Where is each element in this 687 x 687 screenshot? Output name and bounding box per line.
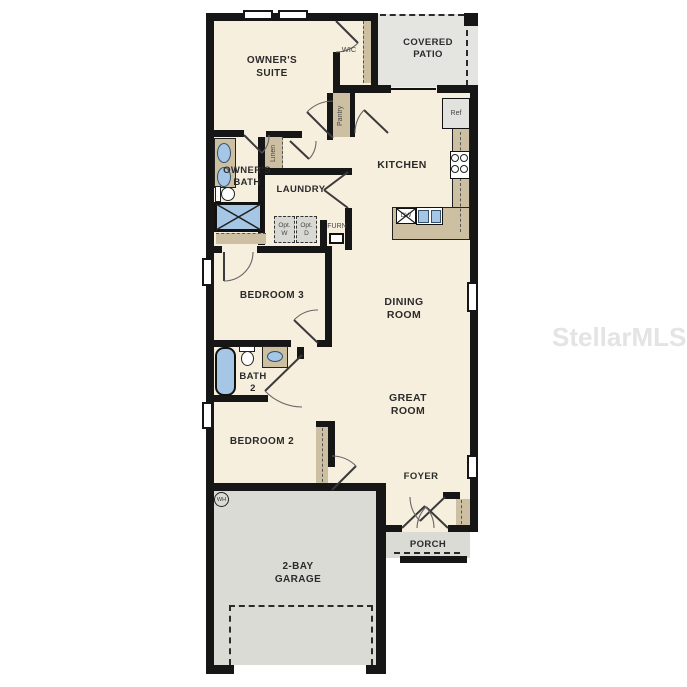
garage-label: 2-BAY GARAGE <box>266 561 330 586</box>
wall <box>350 93 355 137</box>
sink-basin <box>418 210 429 223</box>
window <box>278 10 308 20</box>
optional-dryer-label: Opt. D <box>299 222 315 236</box>
wall <box>317 340 332 347</box>
patio-dashed-edge-top <box>380 14 464 16</box>
toilet-bowl <box>241 351 254 366</box>
bath2-label: BATH 2 <box>238 371 268 395</box>
wall <box>206 395 268 402</box>
floor-plan: Ref DW Opt. W Opt. D WH <box>0 0 687 687</box>
vanity-sink <box>217 143 231 163</box>
window <box>243 10 273 20</box>
window <box>467 282 478 312</box>
window <box>467 455 478 479</box>
porch-step-wall <box>400 556 467 563</box>
furnace-label: FURN <box>327 223 346 231</box>
coat-closet <box>456 499 470 525</box>
wall <box>437 85 478 93</box>
wall <box>443 492 460 499</box>
wall <box>206 246 222 253</box>
refrigerator: Ref <box>442 98 470 129</box>
refrigerator-label: Ref <box>451 110 462 118</box>
wall <box>333 85 378 93</box>
laundry-label: LAUNDRY <box>266 184 336 196</box>
wall <box>366 665 386 674</box>
pantry-label: Pantry <box>337 99 344 133</box>
linen-label: Linen <box>270 140 277 166</box>
window <box>202 258 213 286</box>
optional-dryer: Opt. D <box>296 216 317 243</box>
patio-dashed-edge-right <box>466 20 468 86</box>
foyer-label: FOYER <box>391 471 451 483</box>
sink-basin <box>431 210 442 223</box>
wall <box>206 665 234 674</box>
counter-dashed-line <box>460 132 461 232</box>
garage-door-dashed-outline <box>229 605 373 665</box>
bedroom3-label: BEDROOM 3 <box>227 290 317 303</box>
wall <box>371 13 378 93</box>
kitchen-label: KITCHEN <box>367 159 437 172</box>
porch-label: PORCH <box>398 539 458 551</box>
owners-suite-label: OWNER'S SUITE <box>237 55 307 80</box>
bedroom2-label: BEDROOM 2 <box>217 436 307 449</box>
wall <box>376 491 386 674</box>
water-heater-label: WH <box>217 497 226 503</box>
wall <box>206 130 244 137</box>
wall <box>325 250 332 347</box>
wall <box>386 525 402 532</box>
optional-washer-label: Opt. W <box>277 222 293 236</box>
toilet-bowl <box>221 187 235 201</box>
bathtub <box>215 347 236 396</box>
wall <box>377 85 391 93</box>
shower <box>214 202 263 232</box>
closet-rod-dashed <box>322 428 323 482</box>
wall <box>328 421 335 467</box>
wall <box>464 13 478 26</box>
stellar-mls-watermark: StellarMLS <box>552 322 687 353</box>
window <box>202 402 213 429</box>
wall <box>448 525 478 532</box>
wic-label: WIC <box>342 46 357 54</box>
covered-patio-label: COVERED PATIO <box>397 37 459 61</box>
water-heater: WH <box>214 492 229 507</box>
bath2-sink <box>267 351 283 362</box>
bath-storage-strip <box>216 233 266 244</box>
wall <box>206 483 386 491</box>
porch-dashed-edge <box>394 552 460 554</box>
stove <box>450 151 470 179</box>
kitchen-sink <box>416 207 443 225</box>
optional-washer: Opt. W <box>274 216 295 243</box>
dining-room-label: DINING ROOM <box>379 296 429 322</box>
dishwasher-label: DW <box>401 212 412 219</box>
wall <box>333 52 340 85</box>
great-room-label: GREAT ROOM <box>385 392 431 418</box>
furnace <box>329 233 344 244</box>
wall <box>297 347 304 359</box>
wic-shelving <box>363 21 371 83</box>
coat-closet-dashed <box>461 500 462 524</box>
dishwasher: DW <box>396 208 416 224</box>
wall <box>257 246 332 253</box>
